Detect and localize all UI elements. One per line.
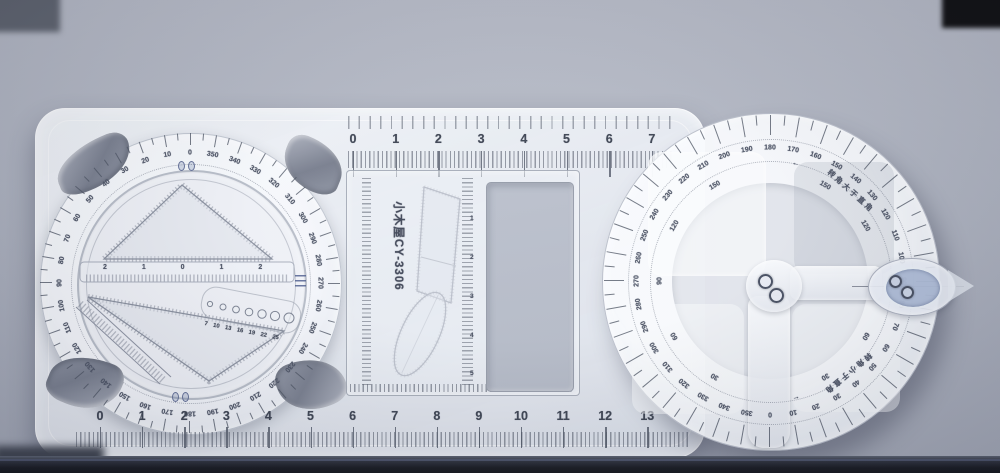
left-dial-center-ruler-labels: 2 1 0 1 2 [103, 264, 262, 271]
cursor-screw [889, 275, 902, 288]
arm-cursor-window [884, 267, 942, 309]
brand-text: 小木屋 [392, 201, 404, 239]
photo-stage: 0350340330320310300290280270260250240230… [0, 0, 1000, 473]
panel-left-serration [362, 178, 371, 388]
bottom-band-blue-line [0, 459, 1000, 461]
disc-alignment-hole [188, 161, 195, 171]
model-text: CY-3306 [392, 239, 404, 291]
bottom-ruler-mm-ticks [76, 432, 688, 447]
disc-alignment-hole [182, 392, 189, 402]
rectangle-window [486, 182, 574, 392]
drawing-ruler-tool: 0350340330320310300290280270260250240230… [0, 0, 1000, 473]
top-ruler-upper-ticks [348, 116, 672, 129]
blue-index-marks [295, 275, 306, 289]
disc-alignment-hole [172, 392, 179, 402]
panel-mid-vertical-ruler [462, 178, 473, 388]
cursor-screw [901, 286, 914, 299]
disc-alignment-hole [178, 161, 185, 171]
